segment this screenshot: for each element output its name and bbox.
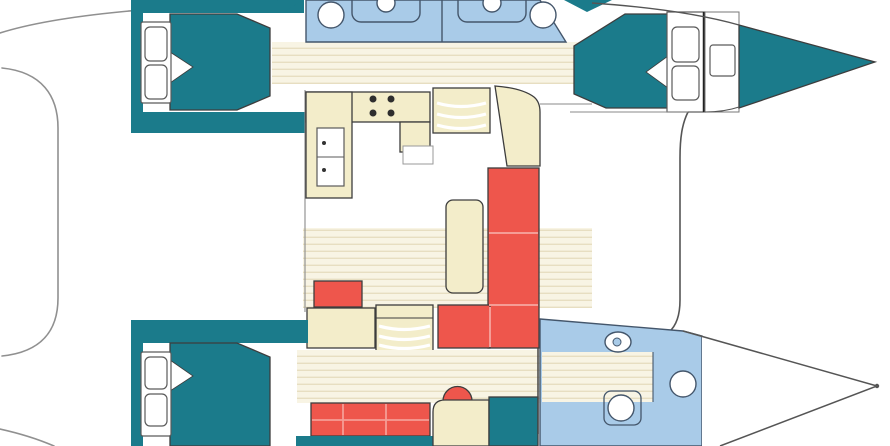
toilet-flush bbox=[613, 338, 621, 346]
saloon-table bbox=[446, 200, 483, 293]
sofa-column bbox=[488, 168, 539, 348]
starboard-hull-bottom-band bbox=[296, 436, 435, 446]
port-aft-step-tread bbox=[145, 27, 167, 61]
bow-fitting bbox=[875, 384, 879, 388]
toilet bbox=[483, 0, 501, 12]
floor-plan-page bbox=[0, 0, 890, 446]
saloon-ottoman bbox=[314, 281, 362, 307]
sink bbox=[608, 395, 634, 421]
toilet bbox=[377, 0, 395, 12]
stove-burner bbox=[370, 96, 377, 103]
starboard-hull-top-band bbox=[131, 320, 308, 343]
starboard-companionway-steps bbox=[376, 305, 433, 352]
port-aft-step-tread bbox=[145, 65, 167, 99]
port-hull-bottom-band bbox=[131, 112, 305, 133]
port-heads bbox=[306, 0, 566, 42]
floor-plan-svg bbox=[0, 0, 890, 446]
starboard-corridor-floor bbox=[297, 350, 540, 403]
sink bbox=[670, 371, 696, 397]
starboard-head bbox=[540, 319, 702, 446]
starboard-aft-step-tread bbox=[145, 394, 167, 426]
port-forward-step-tread bbox=[672, 27, 699, 62]
starboard-aft-cabin-berth bbox=[170, 343, 270, 446]
anchor-locker-hatch bbox=[710, 45, 735, 76]
steps-landing bbox=[403, 146, 433, 164]
stove-burner bbox=[388, 96, 395, 103]
starboard-aft-step-tread bbox=[145, 357, 167, 389]
stove-burner bbox=[388, 110, 395, 117]
port-corridor-floor bbox=[272, 42, 592, 84]
stove-burner bbox=[370, 110, 377, 117]
starboard-desk bbox=[433, 400, 489, 446]
cabinet-knob bbox=[322, 168, 326, 172]
port-forward-step-tread bbox=[672, 66, 699, 100]
sofa-bench bbox=[438, 305, 490, 348]
port-heads-compartment bbox=[306, 0, 566, 42]
sink bbox=[530, 2, 556, 28]
cabinet-knob bbox=[322, 141, 326, 145]
sink bbox=[318, 2, 344, 28]
starboard-wardrobe bbox=[489, 397, 538, 446]
saloon-cabinet bbox=[307, 308, 375, 348]
head-floor bbox=[542, 352, 653, 402]
port-companionway-steps bbox=[433, 88, 490, 133]
